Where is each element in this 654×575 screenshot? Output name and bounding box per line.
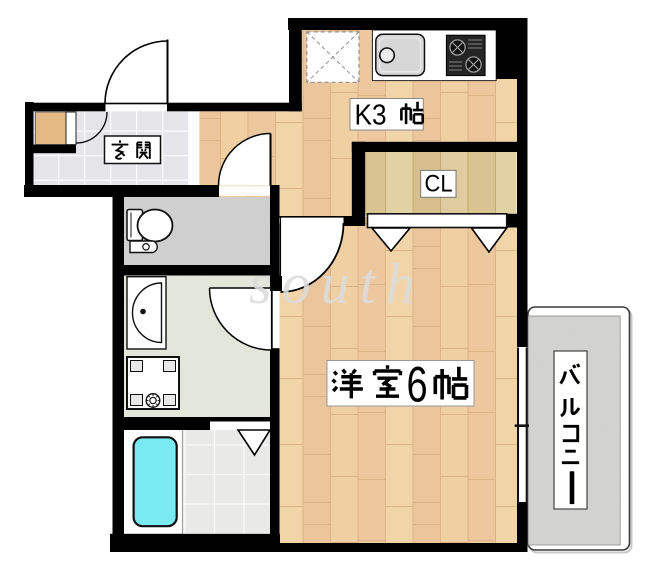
svg-text:6: 6 xyxy=(407,358,428,413)
svg-text:CL: CL xyxy=(425,171,453,198)
svg-text:south: south xyxy=(249,251,425,316)
svg-text:K3: K3 xyxy=(355,100,387,132)
